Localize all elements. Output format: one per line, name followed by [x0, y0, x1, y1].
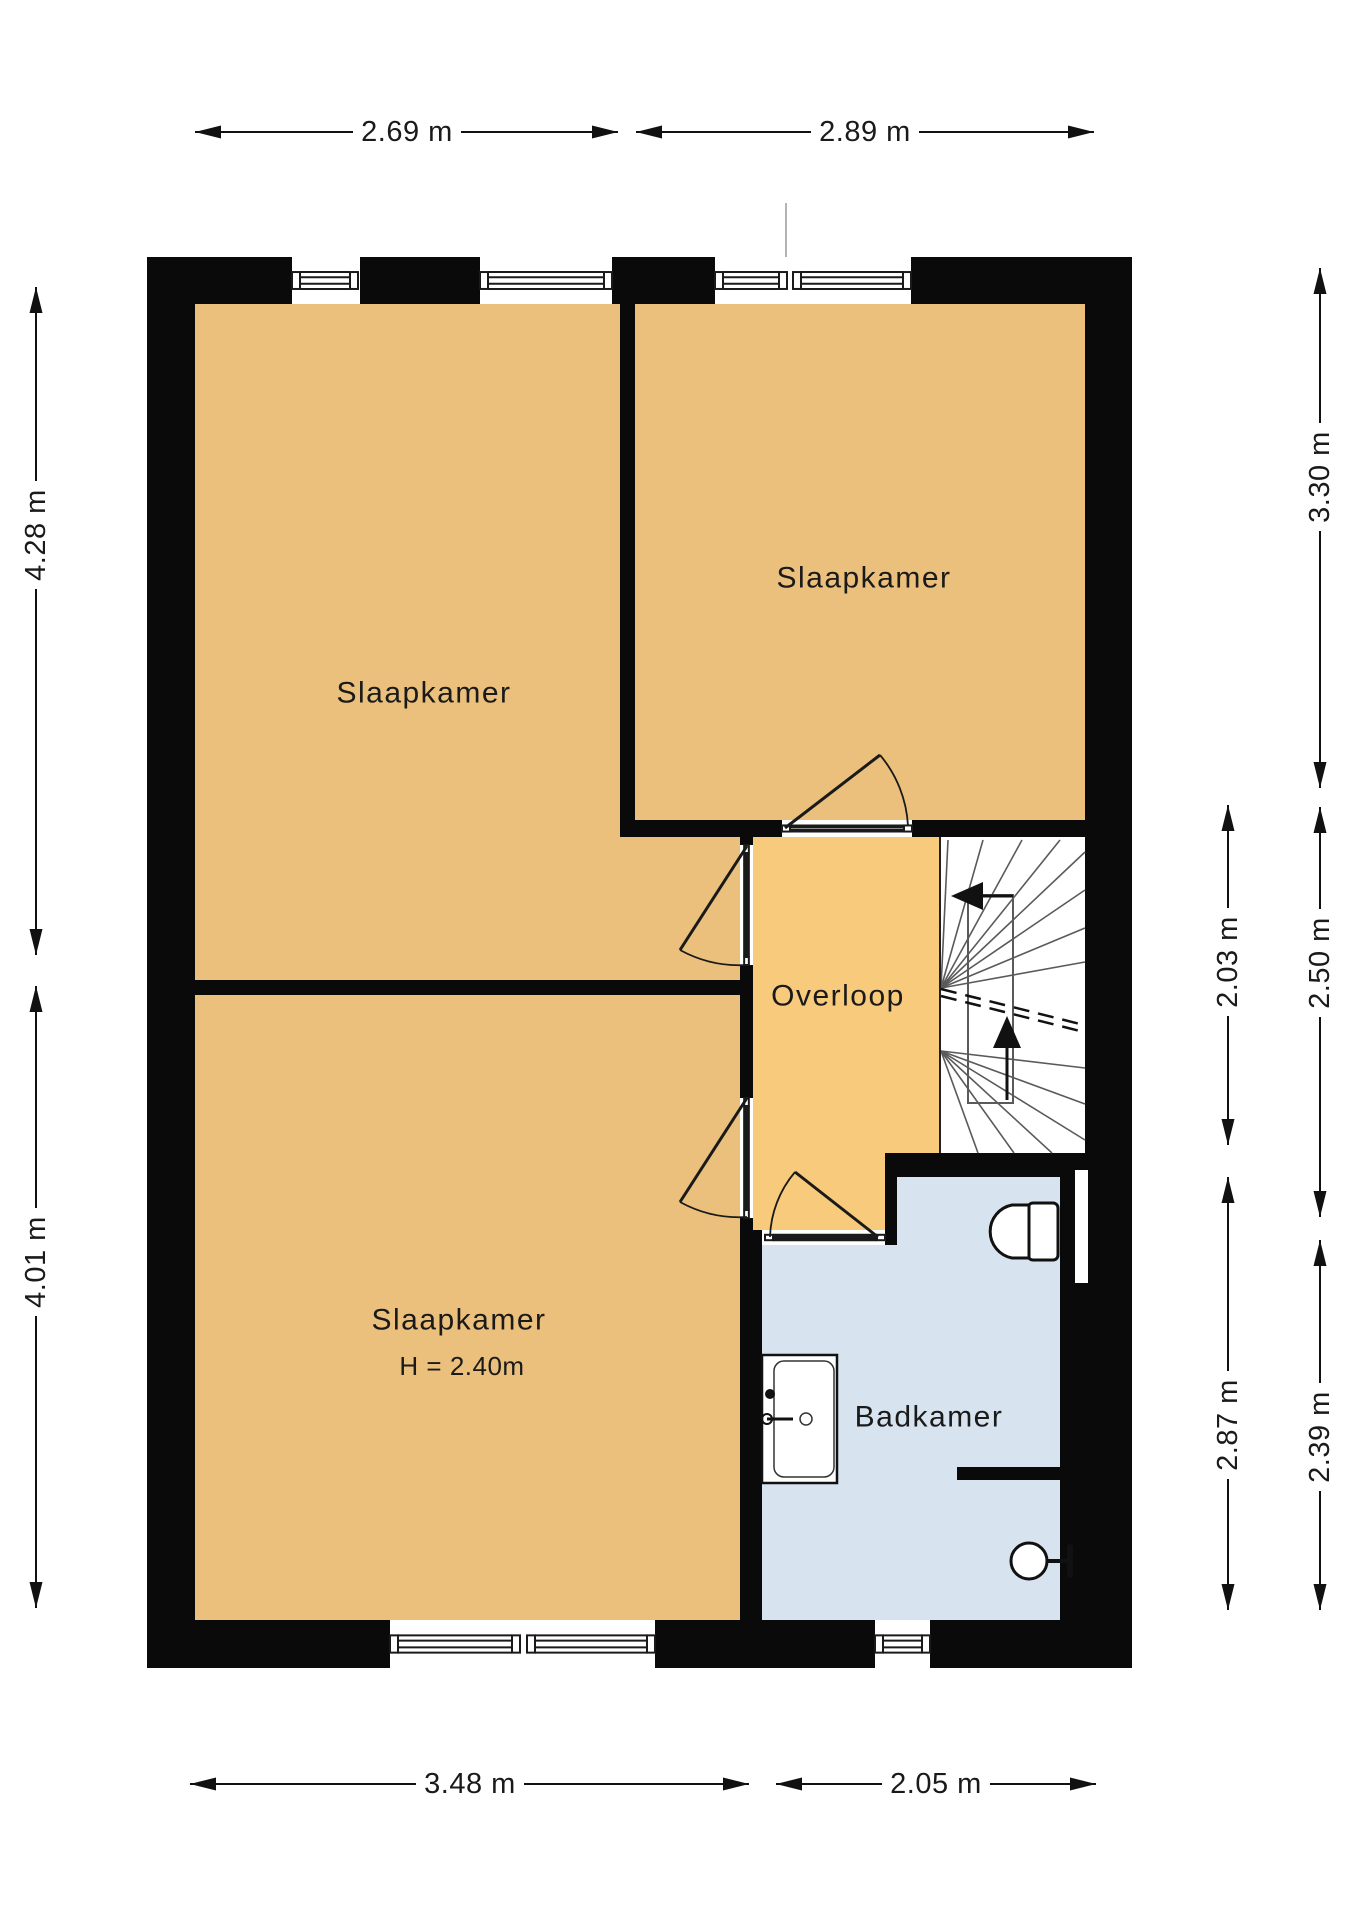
- dim-right-inner-lower: 2.87 m: [1212, 1177, 1244, 1610]
- window-bottom-1-cap: [390, 1635, 398, 1652]
- dim-right-outer-upper-label: 3.30 m: [1304, 431, 1336, 523]
- dim-right-outer-lower-arrowhead: [1314, 1240, 1327, 1266]
- doorsill-slaapkamer-2-opening: [782, 820, 912, 837]
- dim-bottom-left-arrowhead: [190, 1778, 216, 1791]
- wall-segment: [147, 257, 195, 1668]
- wall-segment: [1085, 257, 1132, 1153]
- window-top-1-opening: [292, 257, 358, 304]
- window-bathroom-cap: [922, 1635, 930, 1652]
- window-top-3: [715, 257, 787, 304]
- room-label-slaapkamer-3: Slaapkamer: [371, 1304, 546, 1337]
- room-sublabel-slaapkamer-3: H = 2.40m: [399, 1351, 524, 1381]
- wall-segment: [957, 1467, 1060, 1480]
- window-top-3-cap: [715, 272, 723, 289]
- dim-left-lower-arrowhead: [30, 986, 43, 1012]
- dim-right-inner-lower-label: 2.87 m: [1212, 1379, 1244, 1471]
- dim-left-upper-arrowhead: [30, 929, 43, 955]
- dim-right-outer-lower-label: 2.39 m: [1304, 1391, 1336, 1483]
- dim-bottom-left: 3.48 m: [190, 1768, 749, 1800]
- dim-right-inner-upper-label: 2.03 m: [1212, 916, 1244, 1008]
- dim-top-left: 2.69 m: [195, 116, 618, 148]
- toilet-bowl: [990, 1205, 1029, 1258]
- dim-right-inner-upper-arrowhead: [1222, 1119, 1235, 1145]
- wall-segment: [740, 1230, 762, 1620]
- floor-plan-svg: 2.69 m2.89 m3.48 m2.05 m4.28 m4.01 m2.03…: [0, 0, 1358, 1920]
- dim-top-right-arrowhead: [636, 126, 662, 139]
- window-top-4-cap: [903, 272, 911, 289]
- dim-right-outer-upper: 3.30 m: [1304, 268, 1336, 788]
- dim-top-left-arrowhead: [195, 126, 221, 139]
- dim-left-lower: 4.01 m: [20, 986, 52, 1608]
- dim-bottom-left-arrowhead: [723, 1778, 749, 1791]
- window-top-1-cap: [292, 272, 300, 289]
- dim-top-right-label: 2.89 m: [819, 116, 911, 148]
- doorsill-badkamer-cap: [765, 1235, 773, 1240]
- window-top-2-cap: [480, 272, 488, 289]
- window-bathroom-cap: [875, 1635, 883, 1652]
- dim-top-right-arrowhead: [1068, 126, 1094, 139]
- dim-right-inner-upper: 2.03 m: [1212, 805, 1244, 1145]
- dim-right-outer-middle-arrowhead: [1314, 807, 1327, 833]
- doorsill-slaapkamer-1-cap: [744, 957, 749, 965]
- dim-right-outer-middle-arrowhead: [1314, 1191, 1327, 1217]
- dim-right-outer-middle: 2.50 m: [1304, 807, 1336, 1217]
- wall-segment: [740, 837, 753, 845]
- dim-right-outer-upper-arrowhead: [1314, 762, 1327, 788]
- dim-left-upper: 4.28 m: [20, 287, 52, 955]
- window-bottom-1-opening: [390, 1620, 520, 1668]
- window-bathroom: [875, 1620, 930, 1668]
- dim-right-outer-lower-arrowhead: [1314, 1584, 1327, 1610]
- dim-bottom-right: 2.05 m: [776, 1768, 1096, 1800]
- dim-left-upper-label: 4.28 m: [20, 489, 52, 581]
- doorsill-badkamer: [765, 1230, 885, 1245]
- window-top-2: [480, 257, 612, 304]
- room-label-badkamer: Badkamer: [855, 1401, 1004, 1434]
- wall-segment: [740, 965, 753, 1098]
- dim-top-left-arrowhead: [592, 126, 618, 139]
- wall-segment: [930, 1620, 1132, 1668]
- dim-bottom-right-arrowhead: [1070, 1778, 1096, 1791]
- doorsill-slaapkamer-1: [740, 845, 753, 965]
- window-top-2-opening: [480, 257, 612, 304]
- window-bottom-2: [527, 1620, 655, 1668]
- wall-segment: [612, 257, 715, 304]
- wall-segment: [620, 820, 782, 837]
- dim-left-lower-arrowhead: [30, 1582, 43, 1608]
- dim-bottom-right-arrowhead: [776, 1778, 802, 1791]
- dim-bottom-right-label: 2.05 m: [890, 1768, 982, 1800]
- dim-right-outer-lower: 2.39 m: [1304, 1240, 1336, 1610]
- washbasin-tap-dot: [765, 1389, 775, 1399]
- dim-left-upper-arrowhead: [30, 287, 43, 313]
- wall-segment: [655, 1620, 875, 1668]
- wall-segment: [897, 1153, 1085, 1177]
- window-top-3-opening: [715, 257, 787, 304]
- window-top-1: [292, 257, 358, 304]
- wall-segment: [740, 1218, 753, 1230]
- toilet-tank: [1028, 1203, 1058, 1260]
- wall-segment: [912, 820, 1085, 837]
- dim-top-right: 2.89 m: [636, 116, 1094, 148]
- window-bottom-2-opening: [527, 1620, 655, 1668]
- window-bottom-1-cap: [512, 1635, 520, 1652]
- room-label-slaapkamer-2: Slaapkamer: [776, 562, 951, 595]
- window-bottom-2-cap: [527, 1635, 535, 1652]
- doorsill-slaapkamer-3: [740, 1098, 753, 1218]
- wall-niche: [1075, 1170, 1088, 1283]
- dim-right-outer-upper-arrowhead: [1314, 268, 1327, 294]
- wall-segment: [195, 980, 753, 995]
- doorsill-slaapkamer-2: [782, 820, 912, 837]
- floor-plan: 2.69 m2.89 m3.48 m2.05 m4.28 m4.01 m2.03…: [0, 0, 1358, 1920]
- dim-right-outer-middle-label: 2.50 m: [1304, 917, 1336, 1009]
- shower-head: [1011, 1543, 1047, 1579]
- dim-right-inner-upper-arrowhead: [1222, 805, 1235, 831]
- dim-right-inner-lower-arrowhead: [1222, 1177, 1235, 1203]
- window-top-4: [793, 257, 911, 304]
- doorsill-slaapkamer-2-cap: [904, 825, 912, 831]
- window-bottom-1: [390, 1620, 520, 1668]
- window-top-1-cap: [350, 272, 358, 289]
- window-top-4-cap: [793, 272, 801, 289]
- wall-segment: [620, 304, 635, 820]
- dim-bottom-left-label: 3.48 m: [424, 1768, 516, 1800]
- room-label-overloop: Overloop: [771, 980, 905, 1013]
- wall-segment: [885, 1153, 897, 1245]
- wall-segment: [147, 1620, 390, 1668]
- wall-segment: [360, 257, 480, 304]
- room-label-slaapkamer-1: Slaapkamer: [336, 677, 511, 710]
- dim-top-left-label: 2.69 m: [361, 116, 453, 148]
- window-bottom-2-cap: [647, 1635, 655, 1652]
- window-top-2-cap: [604, 272, 612, 289]
- window-top-4-opening: [793, 257, 911, 304]
- dim-right-inner-lower-arrowhead: [1222, 1584, 1235, 1610]
- doorsill-badkamer-opening: [765, 1230, 885, 1245]
- dim-left-lower-label: 4.01 m: [20, 1216, 52, 1308]
- window-top-3-cap: [779, 272, 787, 289]
- wall-segment: [1060, 1153, 1132, 1668]
